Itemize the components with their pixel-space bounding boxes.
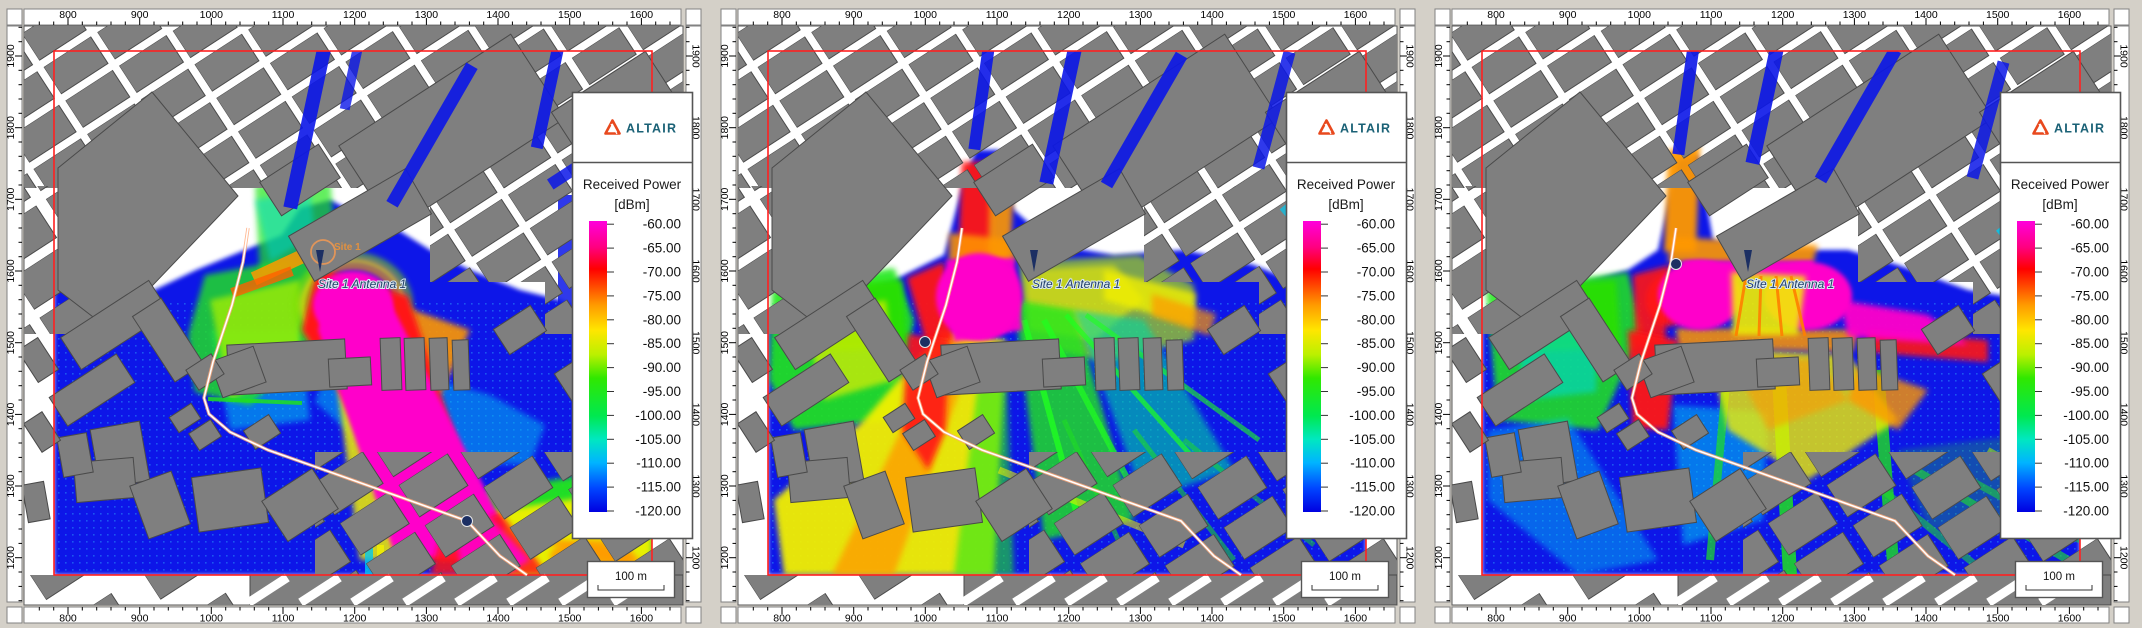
svg-text:1200: 1200 <box>343 9 367 21</box>
svg-text:Site 1: Site 1 <box>334 242 361 253</box>
svg-text:-115.00: -115.00 <box>636 480 681 495</box>
svg-text:1400: 1400 <box>486 613 510 625</box>
svg-text:-115.00: -115.00 <box>2064 480 2109 495</box>
svg-text:-80.00: -80.00 <box>2071 312 2109 327</box>
svg-text:-80.00: -80.00 <box>1357 312 1395 327</box>
svg-text:1400: 1400 <box>486 9 510 21</box>
svg-text:-65.00: -65.00 <box>1357 241 1395 256</box>
svg-text:-100.00: -100.00 <box>1349 408 1395 423</box>
svg-text:-60.00: -60.00 <box>2071 217 2109 232</box>
svg-text:-120.00: -120.00 <box>1349 504 1395 519</box>
svg-text:1600: 1600 <box>2058 613 2082 625</box>
svg-text:1700: 1700 <box>5 187 17 211</box>
svg-text:1100: 1100 <box>272 613 295 625</box>
svg-text:1500: 1500 <box>558 613 582 625</box>
svg-text:1600: 1600 <box>1433 259 1445 283</box>
svg-text:100 m: 100 m <box>1329 571 1361 583</box>
svg-text:-60.00: -60.00 <box>643 217 681 232</box>
svg-text:-75.00: -75.00 <box>643 288 681 303</box>
svg-text:1600: 1600 <box>630 9 654 21</box>
svg-text:800: 800 <box>59 9 77 21</box>
svg-text:1300: 1300 <box>1129 9 1153 21</box>
svg-text:[dBm]: [dBm] <box>614 197 649 212</box>
svg-text:-105.00: -105.00 <box>1349 432 1395 447</box>
svg-text:1400: 1400 <box>1200 9 1224 21</box>
svg-text:-85.00: -85.00 <box>2071 336 2109 351</box>
svg-text:-65.00: -65.00 <box>643 241 681 256</box>
svg-text:Received Power: Received Power <box>2011 177 2110 192</box>
svg-text:-120.00: -120.00 <box>2063 504 2109 519</box>
svg-text:-90.00: -90.00 <box>643 360 681 375</box>
svg-text:1500: 1500 <box>719 331 731 355</box>
svg-text:1600: 1600 <box>719 259 731 283</box>
svg-text:1300: 1300 <box>1433 474 1445 498</box>
svg-text:900: 900 <box>845 613 863 625</box>
svg-text:1600: 1600 <box>5 259 17 283</box>
svg-text:1500: 1500 <box>1433 331 1445 355</box>
svg-text:Site 1 Antenna 1: Site 1 Antenna 1 <box>1032 277 1120 291</box>
svg-text:-70.00: -70.00 <box>1357 265 1395 280</box>
svg-text:1700: 1700 <box>1433 187 1445 211</box>
svg-text:1000: 1000 <box>200 9 224 21</box>
svg-text:1500: 1500 <box>558 9 582 21</box>
svg-text:800: 800 <box>773 9 791 21</box>
svg-text:-110.00: -110.00 <box>1350 456 1395 471</box>
svg-text:-110.00: -110.00 <box>636 456 681 471</box>
svg-text:-65.00: -65.00 <box>2071 241 2109 256</box>
svg-text:900: 900 <box>131 613 149 625</box>
svg-text:1300: 1300 <box>1843 613 1867 625</box>
svg-text:1700: 1700 <box>719 187 731 211</box>
svg-text:800: 800 <box>773 613 791 625</box>
svg-text:1300: 1300 <box>1129 613 1153 625</box>
svg-text:1500: 1500 <box>1272 613 1296 625</box>
svg-text:-85.00: -85.00 <box>643 336 681 351</box>
svg-text:100 m: 100 m <box>2043 571 2075 583</box>
svg-text:1400: 1400 <box>1433 403 1445 427</box>
svg-text:-115.00: -115.00 <box>1350 480 1395 495</box>
svg-text:1100: 1100 <box>272 9 295 21</box>
svg-text:-60.00: -60.00 <box>1357 217 1395 232</box>
svg-text:1500: 1500 <box>5 331 17 355</box>
svg-text:1900: 1900 <box>1433 44 1445 68</box>
svg-text:ALTAIR: ALTAIR <box>626 122 677 136</box>
svg-text:1100: 1100 <box>1700 9 1723 21</box>
svg-text:[dBm]: [dBm] <box>1328 197 1363 212</box>
svg-text:1400: 1400 <box>1914 9 1938 21</box>
svg-text:1800: 1800 <box>719 116 731 140</box>
svg-text:-70.00: -70.00 <box>643 265 681 280</box>
svg-text:-85.00: -85.00 <box>1357 336 1395 351</box>
svg-text:Received Power: Received Power <box>1297 177 1396 192</box>
svg-text:Site 1 Antenna 1: Site 1 Antenna 1 <box>1746 277 1834 291</box>
svg-text:800: 800 <box>59 613 77 625</box>
svg-text:900: 900 <box>131 9 149 21</box>
svg-text:1900: 1900 <box>5 44 17 68</box>
svg-text:1200: 1200 <box>343 613 367 625</box>
svg-text:1200: 1200 <box>1771 9 1795 21</box>
svg-text:-100.00: -100.00 <box>635 408 681 423</box>
svg-text:1300: 1300 <box>1843 9 1867 21</box>
svg-text:-95.00: -95.00 <box>643 384 681 399</box>
svg-text:1100: 1100 <box>986 613 1009 625</box>
svg-text:1500: 1500 <box>1272 9 1296 21</box>
svg-text:-110.00: -110.00 <box>2064 456 2109 471</box>
svg-text:1200: 1200 <box>1057 9 1081 21</box>
svg-text:-105.00: -105.00 <box>635 432 681 447</box>
svg-text:1200: 1200 <box>690 546 702 570</box>
svg-text:1200: 1200 <box>1057 613 1081 625</box>
svg-text:1200: 1200 <box>1433 546 1445 570</box>
svg-text:1900: 1900 <box>1404 44 1416 68</box>
svg-text:1400: 1400 <box>1200 613 1224 625</box>
svg-text:1300: 1300 <box>5 474 17 498</box>
svg-text:800: 800 <box>1487 9 1505 21</box>
svg-text:1200: 1200 <box>1771 613 1795 625</box>
svg-text:900: 900 <box>845 9 863 21</box>
svg-text:1300: 1300 <box>719 474 731 498</box>
svg-text:ALTAIR: ALTAIR <box>1340 122 1391 136</box>
svg-text:1800: 1800 <box>1433 116 1445 140</box>
svg-text:1100: 1100 <box>1700 613 1723 625</box>
svg-text:1100: 1100 <box>986 9 1009 21</box>
svg-text:-95.00: -95.00 <box>1357 384 1395 399</box>
svg-text:-100.00: -100.00 <box>2063 408 2109 423</box>
svg-text:900: 900 <box>1559 613 1577 625</box>
svg-text:1800: 1800 <box>5 116 17 140</box>
svg-text:1400: 1400 <box>5 403 17 427</box>
svg-text:ALTAIR: ALTAIR <box>2054 122 2105 136</box>
svg-text:[dBm]: [dBm] <box>2042 197 2077 212</box>
svg-text:1900: 1900 <box>690 44 702 68</box>
svg-text:1400: 1400 <box>719 403 731 427</box>
svg-text:Site 1 Antenna 1: Site 1 Antenna 1 <box>318 277 406 291</box>
svg-text:-70.00: -70.00 <box>2071 265 2109 280</box>
svg-text:-90.00: -90.00 <box>1357 360 1395 375</box>
svg-text:1500: 1500 <box>1986 613 2010 625</box>
svg-text:1000: 1000 <box>914 9 938 21</box>
svg-text:1500: 1500 <box>1986 9 2010 21</box>
svg-text:-90.00: -90.00 <box>2071 360 2109 375</box>
svg-text:-75.00: -75.00 <box>2071 288 2109 303</box>
svg-text:100 m: 100 m <box>615 571 647 583</box>
svg-text:1300: 1300 <box>415 613 439 625</box>
svg-text:-120.00: -120.00 <box>635 504 681 519</box>
svg-text:1000: 1000 <box>1628 9 1652 21</box>
svg-text:Received Power: Received Power <box>583 177 682 192</box>
svg-text:1200: 1200 <box>2118 546 2130 570</box>
svg-text:1300: 1300 <box>415 9 439 21</box>
svg-text:1000: 1000 <box>1628 613 1652 625</box>
svg-text:1400: 1400 <box>1914 613 1938 625</box>
svg-text:1000: 1000 <box>200 613 224 625</box>
svg-text:-105.00: -105.00 <box>2063 432 2109 447</box>
svg-text:1600: 1600 <box>1344 9 1368 21</box>
svg-text:1900: 1900 <box>2118 44 2130 68</box>
svg-text:1200: 1200 <box>1404 546 1416 570</box>
svg-text:1200: 1200 <box>5 546 17 570</box>
svg-text:900: 900 <box>1559 9 1577 21</box>
svg-text:1200: 1200 <box>719 546 731 570</box>
svg-text:-75.00: -75.00 <box>1357 288 1395 303</box>
svg-text:800: 800 <box>1487 613 1505 625</box>
svg-text:-80.00: -80.00 <box>643 312 681 327</box>
svg-text:1600: 1600 <box>630 613 654 625</box>
svg-text:1600: 1600 <box>2058 9 2082 21</box>
svg-text:1000: 1000 <box>914 613 938 625</box>
svg-text:1600: 1600 <box>1344 613 1368 625</box>
svg-text:1900: 1900 <box>719 44 731 68</box>
svg-text:-95.00: -95.00 <box>2071 384 2109 399</box>
